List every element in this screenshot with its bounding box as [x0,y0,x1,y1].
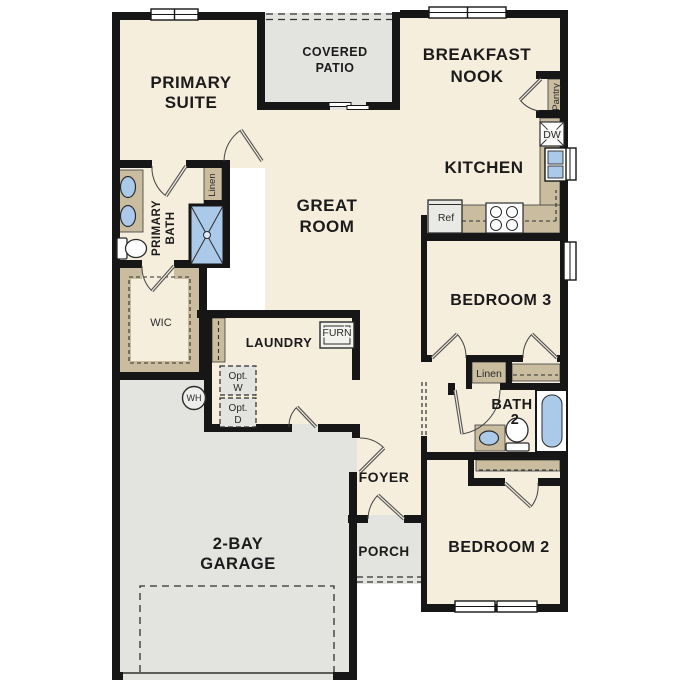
breakfast-nook-window [429,7,506,18]
bedroom2-window-2 [497,601,537,612]
stove-icon [486,203,523,233]
primary-suite-label-2: SUITE [165,93,218,112]
garage-floor-left [112,372,209,680]
bedroom2-label: BEDROOM 2 [448,539,549,556]
refrigerator-label: Ref [438,212,454,224]
garage-label-2: GARAGE [200,555,275,573]
opt-washer-label-1: Opt. [229,371,248,382]
bedroom3-label: BEDROOM 3 [450,292,551,309]
breakfast-nook-label-1: BREAKFAST [423,45,532,64]
bath2-label-1: BATH [491,397,532,413]
bath2-sink [480,431,499,445]
floor-plan: PRIMARY SUITE COVERED PATIO BREAKFAST NO… [0,0,687,687]
opt-washer-label-2: W [233,383,243,394]
covered-patio-label-2: PATIO [316,61,355,75]
foyer-label: FOYER [359,469,410,485]
primary-suite-label-1: PRIMARY [150,73,231,92]
floor-plan-canvas: PRIMARY SUITE COVERED PATIO BREAKFAST NO… [0,0,687,687]
great-room-lower-floor [265,240,421,310]
shower-icon [190,205,224,265]
furnace-label: FURN [322,327,351,339]
pantry-label: Pantry [551,83,562,111]
bedroom2-closet-shelf [476,460,560,471]
bedroom2-window-1 [455,601,495,612]
primary-bath-label-1: PRIMARY [151,200,163,256]
linen-hall-label: Linen [476,368,502,380]
primary-toilet-icon [117,238,147,259]
bathtub-icon [536,390,567,452]
covered-patio-label-1: COVERED [302,45,367,59]
garage-label-1: 2-BAY [213,535,264,553]
kitchen-label: KITCHEN [444,158,523,177]
kitchen-sink-icon [545,148,566,181]
bedroom3-closet-shelf [512,364,560,381]
primary-sink-1 [121,177,136,198]
great-room-label-1: GREAT [297,196,358,215]
dishwasher-label: DW [543,129,561,141]
porch-label: PORCH [358,544,409,559]
great-room-label-2: ROOM [300,217,355,236]
primary-suite-window [151,9,198,20]
laundry-label: LAUNDRY [246,335,313,350]
primary-bath-label-2: BATH [165,211,177,244]
primary-sink-2 [121,206,136,227]
water-heater-label: WH [187,393,202,403]
wic-label: WIC [150,317,171,329]
opt-dryer-label-1: Opt. [229,403,248,414]
bath2-label-2: 2 [511,412,520,428]
linen-primary-label: Linen [207,173,218,196]
opt-dryer-label-2: D [234,415,241,426]
breakfast-nook-label-2: NOOK [451,67,504,86]
bedroom3-window [564,242,576,280]
